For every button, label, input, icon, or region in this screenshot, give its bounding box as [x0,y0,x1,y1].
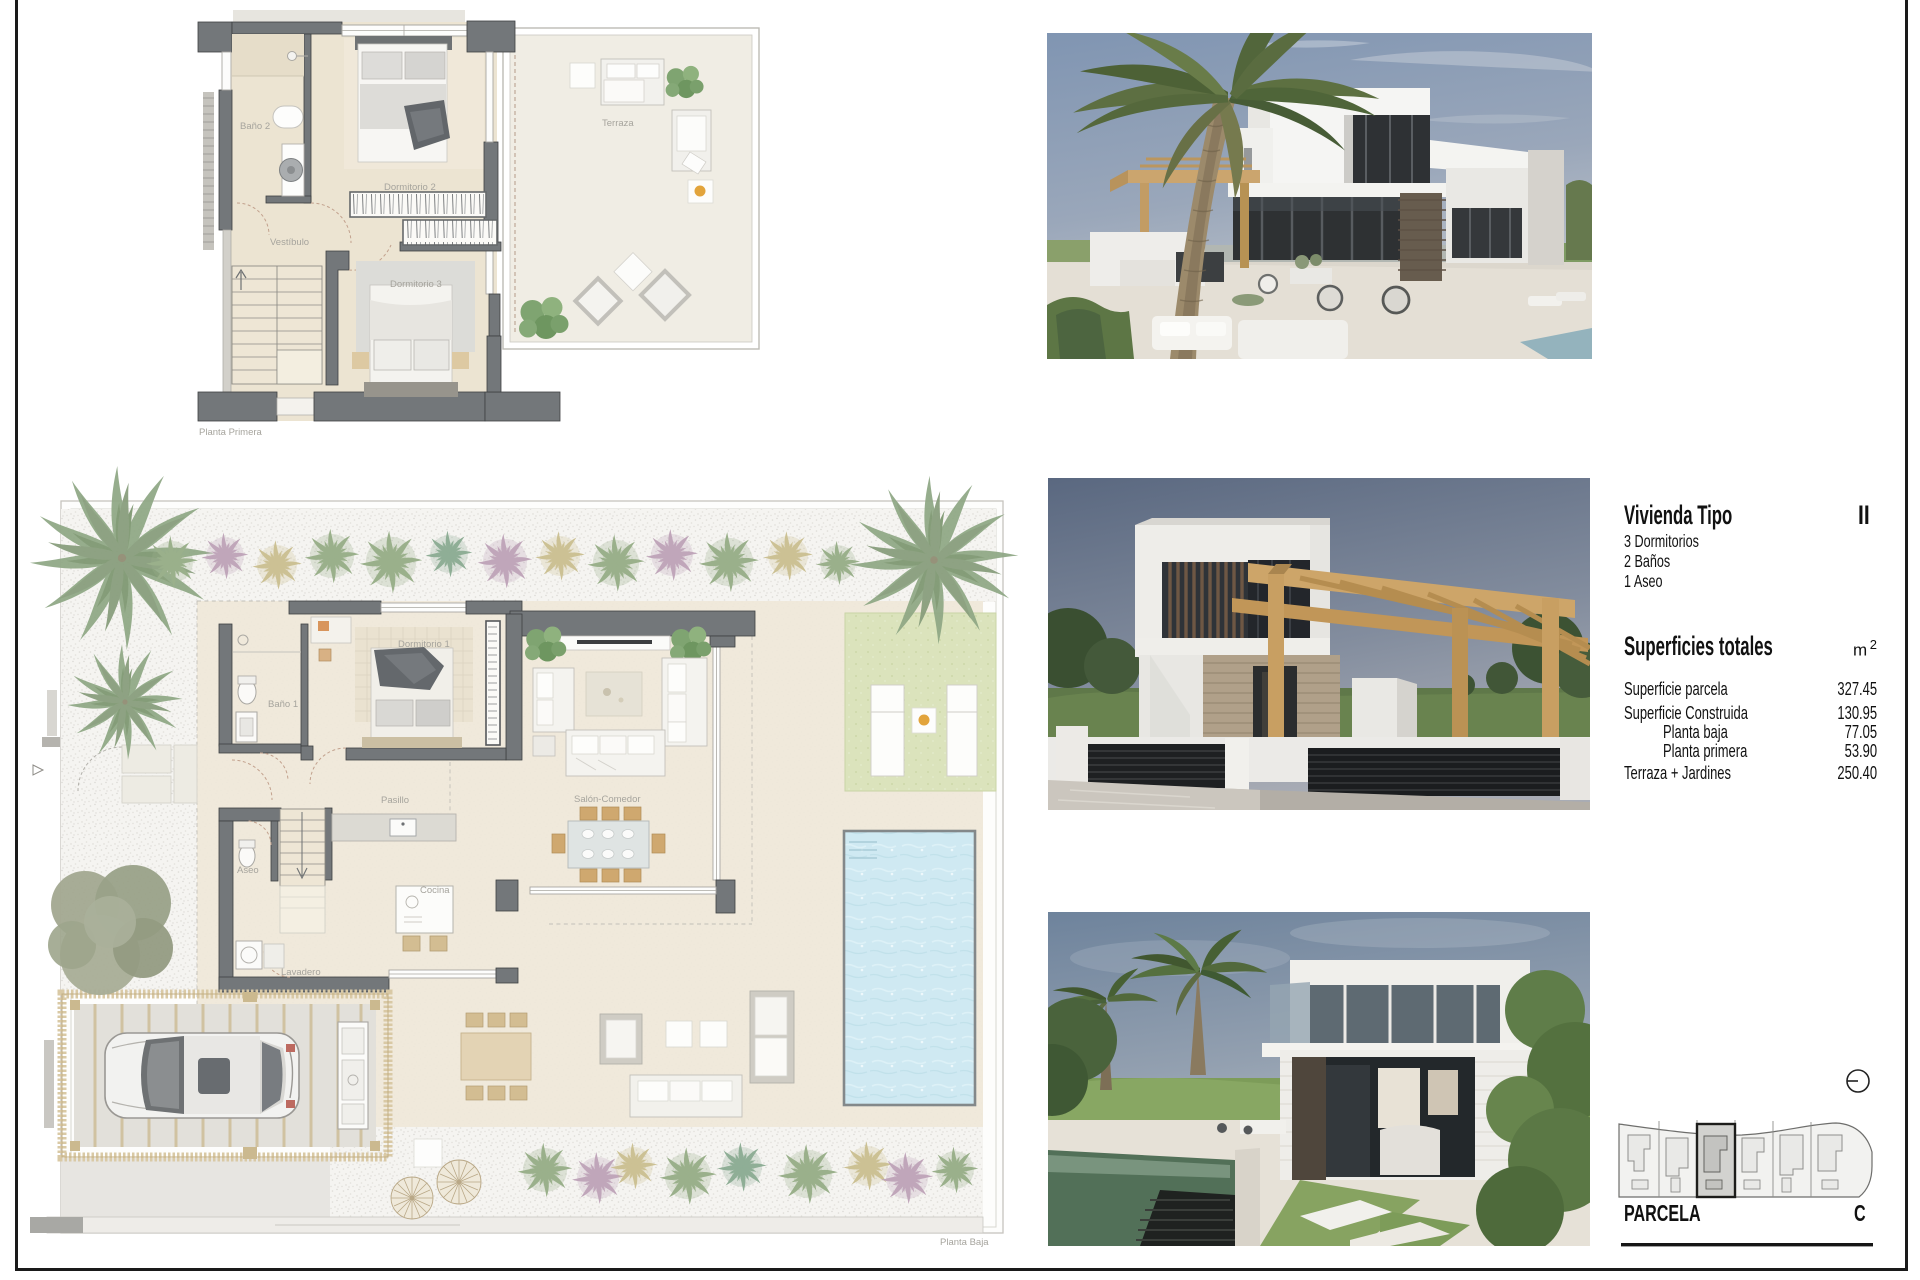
svg-text:Planta Primera: Planta Primera [199,427,263,438]
svg-text:Lavadero: Lavadero [281,967,321,978]
svg-text:Vestíbulo: Vestíbulo [270,237,309,248]
svg-text:Baño 1: Baño 1 [268,699,298,710]
svg-text:Cocina: Cocina [420,885,450,896]
svg-text:Baño 2: Baño 2 [240,121,270,132]
svg-text:Dormitorio 2: Dormitorio 2 [384,182,436,193]
svg-text:Dormitorio 1: Dormitorio 1 [398,639,450,650]
svg-text:Terraza: Terraza [602,118,634,129]
svg-text:Dormitorio 3: Dormitorio 3 [390,279,442,290]
svg-text:Planta Baja: Planta Baja [940,1237,989,1248]
svg-text:Salón-Comedor: Salón-Comedor [574,794,641,805]
svg-text:Pasillo: Pasillo [381,795,409,806]
svg-text:Aseo: Aseo [237,865,259,876]
